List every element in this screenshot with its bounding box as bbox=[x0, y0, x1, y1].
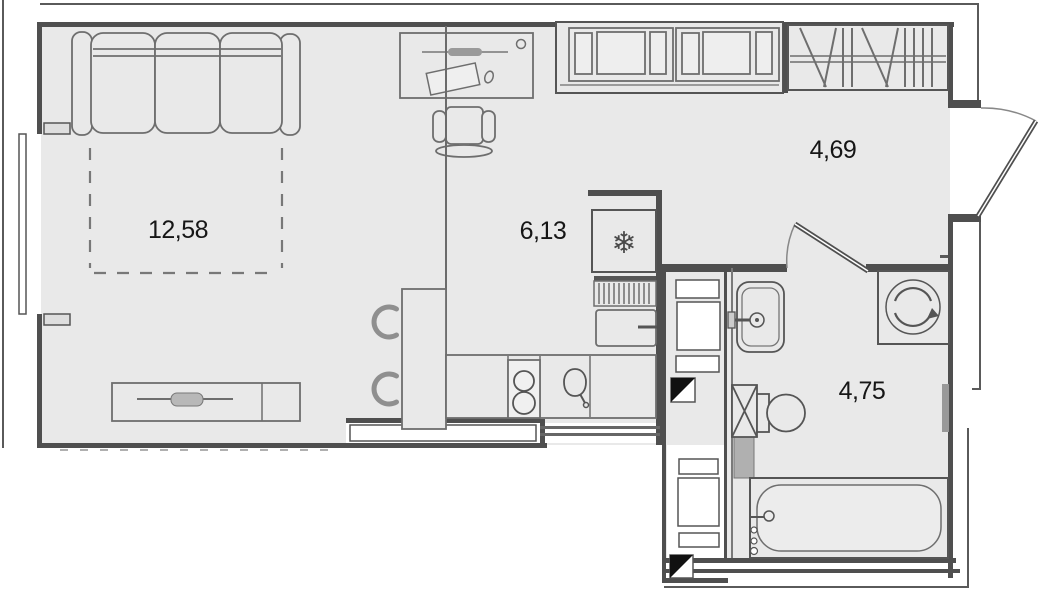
vent-box bbox=[732, 385, 757, 478]
floor-plan: ❄ bbox=[0, 0, 1038, 600]
floor-plan-drawing: ❄ bbox=[0, 0, 1038, 600]
kitchen-tall-unit bbox=[594, 276, 657, 346]
desk bbox=[400, 33, 533, 98]
tv-stand bbox=[112, 383, 300, 421]
freezer-icon: ❄ bbox=[611, 226, 636, 261]
office-chair bbox=[433, 107, 495, 157]
bathroom-sink bbox=[728, 282, 784, 352]
washing-machine bbox=[878, 271, 949, 344]
stove bbox=[508, 360, 540, 418]
room-label-living: 12,58 bbox=[148, 216, 208, 244]
kitchen-counter bbox=[446, 355, 656, 418]
wardrobe bbox=[783, 22, 948, 93]
room-label-hallway: 4,69 bbox=[810, 136, 857, 164]
sofa bbox=[72, 32, 300, 135]
kitchen-upper-cabinets bbox=[556, 22, 783, 93]
tv-base bbox=[171, 393, 203, 406]
bathtub bbox=[750, 478, 948, 558]
room-label-kitchen: 6,13 bbox=[520, 217, 567, 245]
room-label-bathroom: 4,75 bbox=[839, 377, 886, 405]
fridge: ❄ bbox=[592, 210, 656, 272]
toilet bbox=[757, 394, 805, 432]
dining-table bbox=[402, 289, 446, 429]
entrance-door bbox=[978, 108, 1036, 216]
